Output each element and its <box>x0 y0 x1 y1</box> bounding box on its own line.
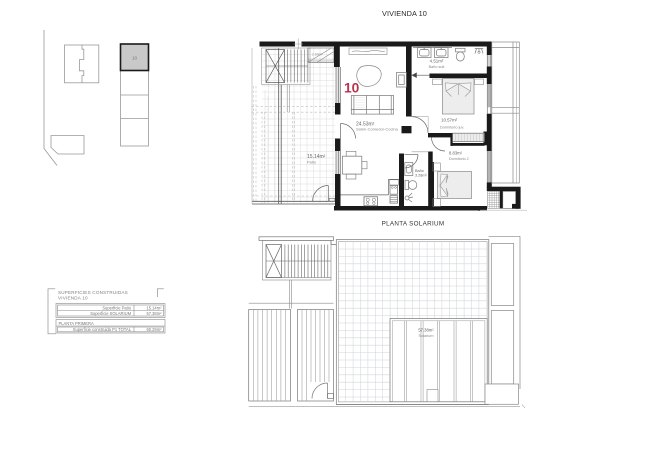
svg-text:60.29m²: 60.29m² <box>146 327 162 332</box>
svg-text:10: 10 <box>344 81 360 96</box>
svg-text:Superficie SOLARIUM: Superficie SOLARIUM <box>90 311 131 316</box>
svg-text:VIVIENDA 10: VIVIENDA 10 <box>58 296 88 301</box>
svg-text:Dormitorio juv.: Dormitorio juv. <box>440 126 464 130</box>
svg-text:2.60m²: 2.60m² <box>312 53 323 57</box>
svg-text:57.38m²: 57.38m² <box>418 328 434 333</box>
svg-text:VIVIENDA 10: VIVIENDA 10 <box>382 9 427 18</box>
svg-text:Baño: Baño <box>415 169 424 173</box>
svg-text:3.28m²: 3.28m² <box>415 174 428 178</box>
svg-text:PLANTA PRIMERA: PLANTA PRIMERA <box>59 321 94 326</box>
svg-text:Dormitorio 2: Dormitorio 2 <box>449 157 469 161</box>
svg-text:Solarium: Solarium <box>419 334 434 338</box>
svg-text:10: 10 <box>132 56 138 61</box>
svg-text:Superficie Patio: Superficie Patio <box>102 305 131 310</box>
svg-text:4.51m²: 4.51m² <box>430 59 444 64</box>
svg-text:Superficie construida P1 TOTAL: Superficie construida P1 TOTAL <box>73 327 132 332</box>
svg-text:SUPERFICIES CONSTRUIDAS: SUPERFICIES CONSTRUIDAS <box>58 290 128 295</box>
svg-text:15.14m²: 15.14m² <box>146 305 162 310</box>
svg-text:Baño suit: Baño suit <box>429 65 446 69</box>
svg-text:PLANTA SOLARIUM: PLANTA SOLARIUM <box>382 221 445 228</box>
svg-text:10.57m²: 10.57m² <box>441 118 458 123</box>
svg-text:8.83m²: 8.83m² <box>449 151 463 156</box>
svg-text:Patio: Patio <box>307 160 317 165</box>
svg-text:Salón-Comedor-Cocina: Salón-Comedor-Cocina <box>356 127 399 132</box>
svg-text:57.38m²: 57.38m² <box>146 311 162 316</box>
